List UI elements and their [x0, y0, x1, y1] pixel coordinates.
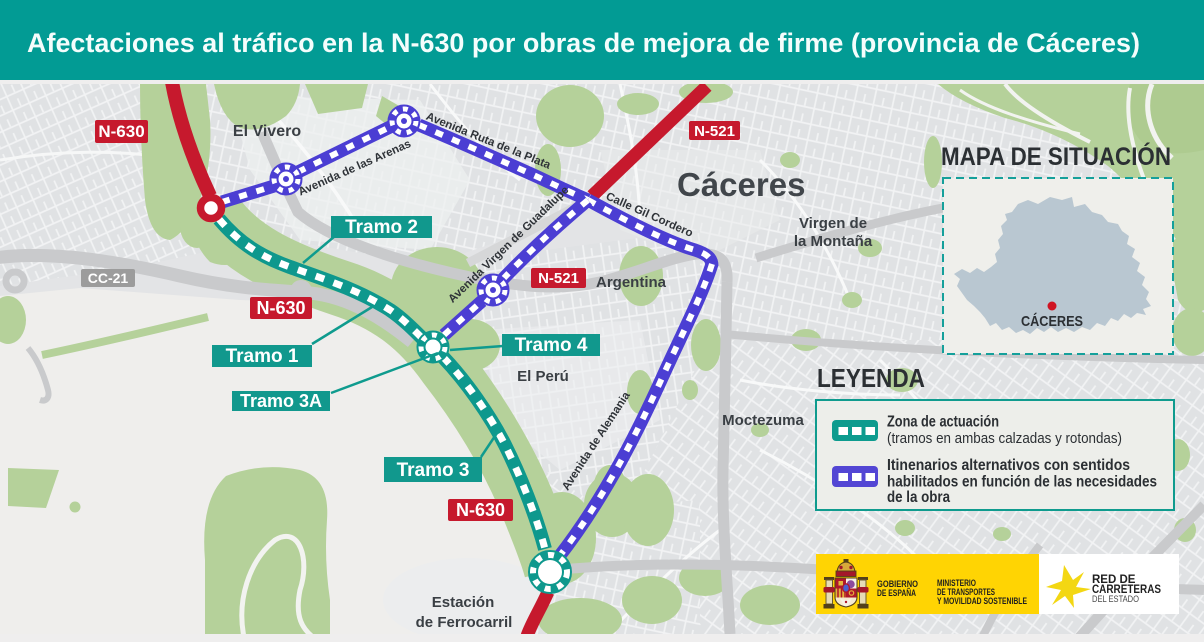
svg-text:Tramo 3A: Tramo 3A [240, 391, 322, 411]
svg-text:DEL ESTADO: DEL ESTADO [1092, 594, 1139, 605]
svg-text:Tramo 1: Tramo 1 [226, 346, 299, 367]
svg-text:Tramo 2: Tramo 2 [345, 217, 418, 238]
svg-text:LEYENDA: LEYENDA [817, 363, 925, 393]
svg-text:Tramo 4: Tramo 4 [515, 335, 588, 356]
svg-text:Itinenarios alternativos con s: Itinenarios alternativos con sentidos [887, 457, 1130, 474]
svg-text:Tramo 3: Tramo 3 [397, 460, 470, 481]
svg-text:Zona de actuación: Zona de actuación [887, 414, 999, 431]
svg-text:Cáceres: Cáceres [677, 166, 805, 203]
svg-text:de Ferrocarril: de Ferrocarril [416, 614, 513, 631]
svg-text:N-630: N-630 [98, 122, 144, 141]
svg-text:CC-21: CC-21 [88, 270, 129, 286]
svg-text:habilitados en función de las: habilitados en función de las necesidade… [887, 474, 1157, 491]
svg-text:Y MOVILIDAD SOSTENIBLE: Y MOVILIDAD SOSTENIBLE [937, 596, 1027, 606]
svg-text:Afectaciones al tráfico en la: Afectaciones al tráfico en la N-630 por … [27, 28, 1140, 58]
svg-text:El Vivero: El Vivero [233, 123, 301, 140]
svg-text:Moctezuma: Moctezuma [722, 412, 804, 429]
svg-text:Argentina: Argentina [596, 274, 667, 291]
svg-text:N-521: N-521 [694, 123, 735, 140]
svg-text:El Perú: El Perú [517, 368, 569, 385]
svg-text:N-630: N-630 [456, 500, 505, 520]
svg-text:DE ESPAÑA: DE ESPAÑA [877, 588, 916, 599]
svg-text:CÁCERES: CÁCERES [1021, 313, 1083, 330]
svg-text:N-630: N-630 [256, 298, 305, 318]
svg-text:de la obra: de la obra [887, 489, 950, 506]
svg-text:la Montaña: la Montaña [794, 233, 873, 250]
svg-text:N-521: N-521 [538, 270, 579, 287]
svg-text:(tramos en ambas calzadas y ro: (tramos en ambas calzadas y rotondas) [887, 430, 1122, 447]
svg-text:Virgen de: Virgen de [799, 215, 867, 232]
svg-text:MAPA DE SITUACIÓN: MAPA DE SITUACIÓN [941, 141, 1171, 171]
svg-text:Estación: Estación [432, 594, 495, 611]
